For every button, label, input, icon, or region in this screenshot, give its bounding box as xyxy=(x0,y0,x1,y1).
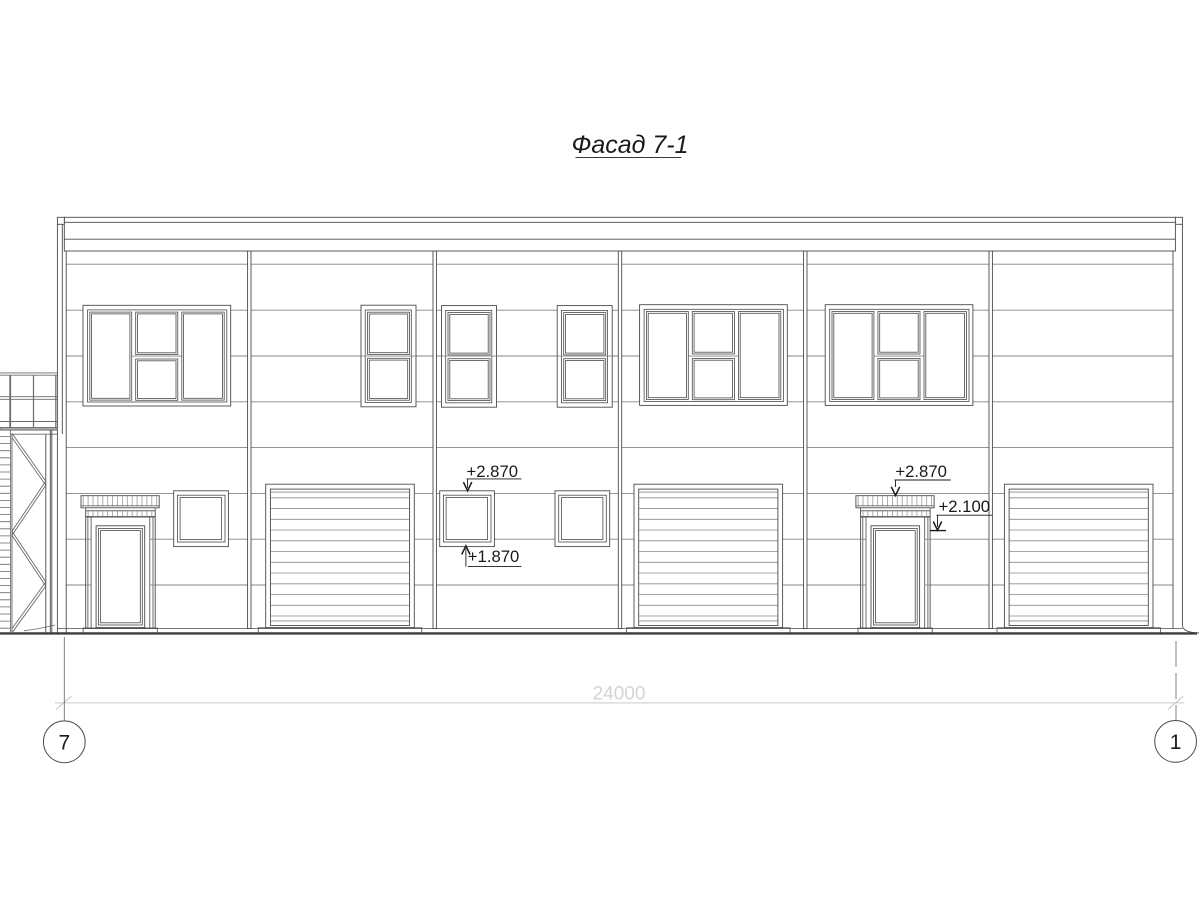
svg-text:+2.870: +2.870 xyxy=(467,462,519,481)
svg-text:7: 7 xyxy=(58,731,70,754)
svg-text:24000: 24000 xyxy=(593,683,646,704)
svg-text:+1.870: +1.870 xyxy=(468,547,520,566)
svg-text:1: 1 xyxy=(1170,731,1182,754)
svg-text:+2.100: +2.100 xyxy=(939,497,991,516)
svg-text:+2.870: +2.870 xyxy=(895,462,947,481)
svg-text:Фасад 7-1: Фасад 7-1 xyxy=(571,131,688,159)
